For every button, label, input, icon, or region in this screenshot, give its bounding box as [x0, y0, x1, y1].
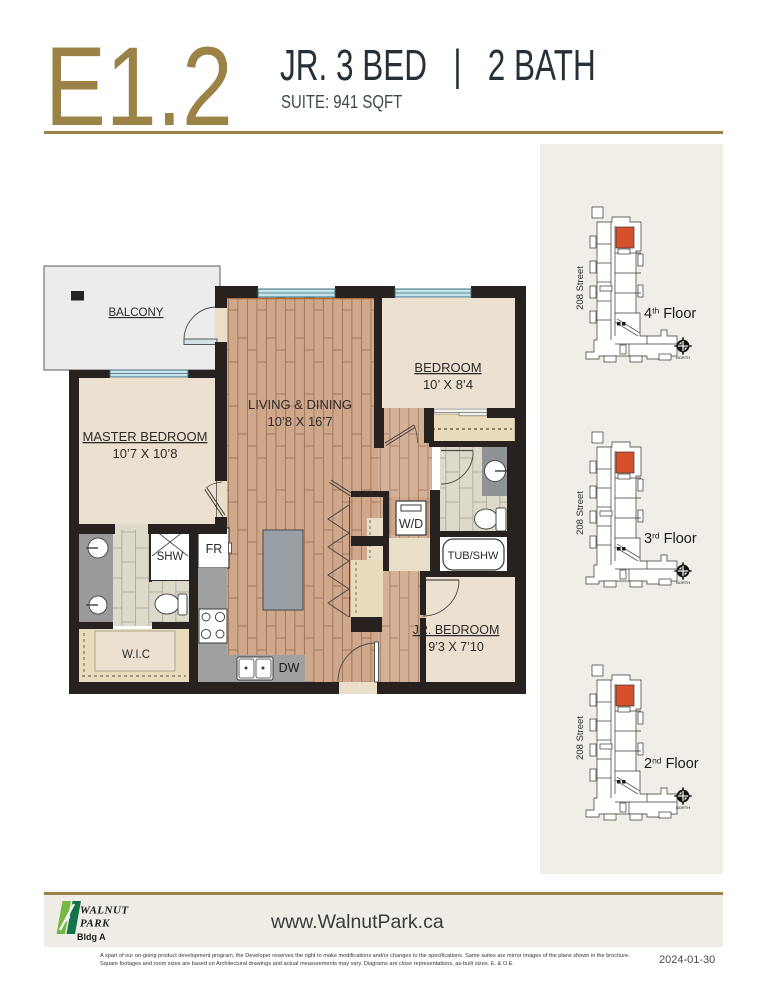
- svg-text:4th Floor: 4th Floor: [644, 306, 696, 323]
- svg-text:Bldg A: Bldg A: [77, 932, 106, 942]
- svg-text:FR: FR: [206, 542, 223, 556]
- svg-text:W/D: W/D: [399, 517, 423, 531]
- svg-text:BEDROOM: BEDROOM: [414, 360, 481, 375]
- svg-text:NORTH: NORTH: [676, 355, 690, 360]
- svg-text:W.I.C: W.I.C: [122, 649, 150, 661]
- svg-text:NORTH: NORTH: [676, 805, 690, 810]
- svg-text:LIVING & DINING: LIVING & DINING: [248, 397, 352, 412]
- svg-text:10’ X 8’4: 10’ X 8’4: [423, 377, 473, 392]
- svg-text:MASTER BEDROOM: MASTER BEDROOM: [83, 429, 208, 444]
- svg-text:PARK: PARK: [80, 918, 110, 930]
- svg-text:208 Street: 208 Street: [575, 266, 586, 310]
- svg-text:208 Street: 208 Street: [575, 491, 586, 535]
- svg-text:WALNUT: WALNUT: [80, 905, 129, 917]
- svg-text:BALCONY: BALCONY: [109, 307, 164, 319]
- svg-text:TUB/SHW: TUB/SHW: [448, 550, 499, 562]
- svg-text:10’8 X 16’7: 10’8 X 16’7: [267, 414, 332, 429]
- svg-text:3rd Floor: 3rd Floor: [644, 531, 697, 548]
- svg-text:10’7 X 10’8: 10’7 X 10’8: [112, 446, 177, 461]
- svg-text:SHW: SHW: [157, 551, 184, 563]
- svg-text:208 Street: 208 Street: [575, 716, 586, 760]
- svg-text:9’3 X 7’10: 9’3 X 7’10: [428, 640, 484, 654]
- svg-text:NORTH: NORTH: [676, 580, 690, 585]
- svg-text:DW: DW: [279, 661, 300, 675]
